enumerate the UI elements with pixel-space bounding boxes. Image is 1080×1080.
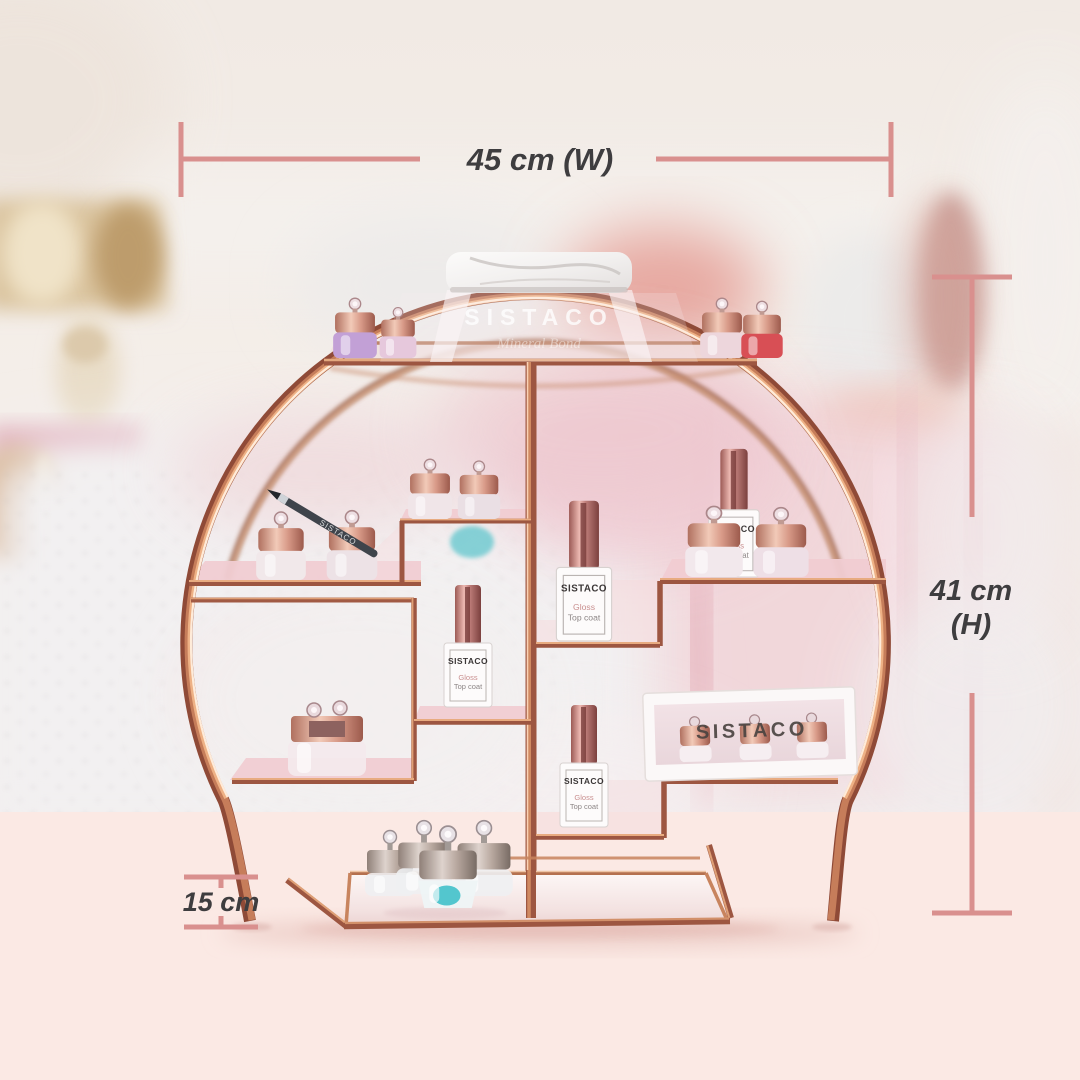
svg-text:41 cm: 41 cm [929,575,1012,607]
svg-text:45 cm (W): 45 cm (W) [466,142,613,177]
svg-text:(H): (H) [951,609,991,641]
svg-text:Mineral Bond: Mineral Bond [496,336,581,352]
svg-text:SISTACO: SISTACO [464,304,614,330]
svg-text:SISTACO: SISTACO [696,718,809,744]
svg-text:15 cm: 15 cm [183,887,260,917]
